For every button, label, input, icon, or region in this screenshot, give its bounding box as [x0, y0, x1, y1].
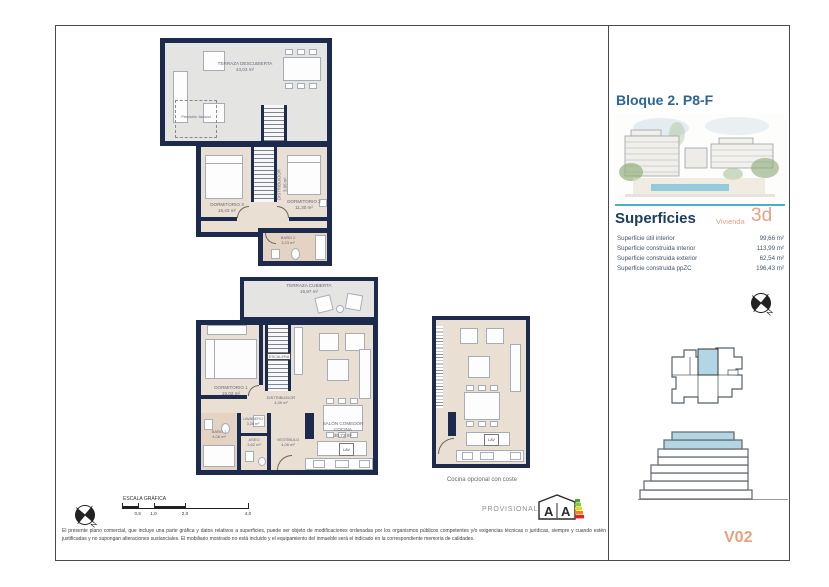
room-area: 3,28 m² — [240, 422, 266, 427]
highlighted-floor — [664, 440, 742, 449]
chair — [285, 83, 293, 89]
scale-tick — [138, 503, 139, 509]
scale-segment — [122, 506, 138, 508]
room-label-dormitorio1: DORMITORIO 1 15,02 m² — [205, 385, 257, 397]
room-label-vestibulo: VESTÍBULO 4,06 m² — [273, 437, 303, 447]
bed-pillows — [287, 155, 321, 163]
room-label-distribuidor-main: DISTRIBUIDOR 4,39 m² — [263, 395, 299, 405]
chair — [297, 83, 305, 89]
jacuzzi-provision-box: Previsión Jacuzzi — [175, 100, 217, 138]
lav-text: LAV — [488, 438, 495, 442]
room-area: 11,30 m² — [283, 205, 325, 211]
chair — [338, 398, 346, 404]
scale-segment — [154, 506, 186, 508]
chair — [350, 398, 358, 404]
side-table — [336, 305, 344, 313]
room-name: ESCALERA — [269, 355, 289, 359]
room-label-dormitorio3: DORMITORIO 3 15,43 m² — [203, 202, 251, 214]
energy-bar-green — [575, 499, 580, 502]
scale-tick-label: 1,0 — [150, 511, 156, 516]
superficie-value: 62,54 m² — [760, 255, 784, 262]
scale-title: ESCALA GRÁFICA — [123, 496, 166, 502]
energy-letter: A — [544, 504, 554, 519]
upper-floor-bath-annex: BAÑO 2 3,23 m² — [258, 228, 332, 266]
scale-tick — [122, 503, 123, 509]
chair — [490, 421, 498, 427]
washer-label: LAV — [339, 443, 354, 456]
interior-wall — [267, 413, 271, 470]
room-area: 4,08 m² — [202, 434, 236, 439]
room-name: Previsión Jacuzzi — [177, 115, 215, 120]
bed-pillows — [205, 339, 215, 379]
room-label-salon: SALÓN COMEDOR COCINA 30,73 m² — [317, 421, 369, 439]
building-elevation-diagram — [638, 428, 788, 521]
chair — [326, 398, 334, 404]
energy-letter: A — [561, 504, 571, 519]
superficie-row: Superficie construida ppZC 196,43 m² — [617, 265, 784, 272]
room-label-lavadero: LAVADERO 3,28 m² — [240, 417, 266, 427]
room-area: 3,62 m² — [241, 442, 267, 447]
disclaimer-body: El presente plano comercial, que incluye… — [62, 528, 606, 542]
coffee-table — [468, 356, 490, 378]
dining-table — [464, 392, 500, 420]
chair — [466, 385, 474, 391]
interior-wall — [201, 217, 237, 221]
pillar — [305, 413, 314, 439]
room-area: 4,39 m² — [263, 400, 299, 405]
shelving — [294, 327, 303, 375]
toilet — [271, 249, 280, 259]
chair — [285, 49, 293, 55]
chair — [478, 421, 486, 427]
armchair — [486, 328, 504, 344]
highlighted-floor — [672, 432, 734, 440]
optional-kitchen-plan: LAV — [432, 316, 530, 468]
washer-label: LAV — [484, 434, 499, 446]
version-label: V02 — [724, 529, 752, 547]
vivienda-text: Vivienda — [716, 217, 745, 226]
cooktop — [480, 452, 494, 460]
kitchen-sink — [462, 452, 473, 460]
block-title-text: Bloque 2. P8-F — [616, 92, 713, 108]
room-area: 15,02 m² — [205, 391, 257, 397]
room-label-terraza-cubierta: TERRAZA CUBIERTA 16,97 m² — [274, 283, 344, 295]
bed-pillows — [205, 155, 243, 164]
scale-tick — [248, 503, 249, 509]
building-rendering — [615, 114, 787, 207]
stairs-label: ESCALERA — [267, 353, 291, 360]
superficie-value: 113,99 m² — [757, 245, 784, 252]
covered-terrace-plan: TERRAZA CUBIERTA 16,97 m² — [240, 277, 378, 321]
interior-wall — [240, 433, 267, 436]
lounge-chair — [314, 294, 333, 313]
jacuzzi-label: Previsión Jacuzzi — [177, 115, 215, 120]
superficie-label: Superficie construida exterior — [617, 255, 697, 262]
energy-bar-orange — [575, 511, 583, 514]
room-area: 43,03 m² — [200, 67, 290, 73]
superficie-label: Superficie útil interior — [617, 235, 675, 242]
scale-tick-label: 4,0 — [245, 511, 251, 516]
toilet — [245, 451, 254, 462]
door-arc — [438, 438, 454, 454]
stairs — [251, 147, 277, 202]
interior-wall — [259, 325, 263, 385]
room-label-dormitorio2: DORMITORIO 2 11,30 m² — [283, 199, 325, 211]
superficie-value: 196,43 m² — [756, 265, 784, 272]
interior-wall — [289, 217, 327, 221]
room-area: 30,73 m² — [317, 433, 369, 439]
unit-type-text: 3d — [751, 205, 772, 226]
sofa — [510, 344, 521, 392]
room-area: 4,06 m² — [273, 442, 303, 447]
pillar — [448, 412, 456, 436]
unit-type-label: 3d — [751, 205, 772, 227]
scale-tick-label: 2,0 — [182, 511, 188, 516]
roof-terrace-plan: TERRAZA DESCUBIERTA 43,03 m² Previsión J… — [160, 38, 332, 146]
bathtub — [203, 445, 235, 467]
superficie-row: Superficie construida exterior 62,54 m² — [617, 255, 784, 262]
superficie-value: 99,66 m² — [760, 235, 784, 242]
main-floor-plan: ESCALERA DISTRIBUIDOR 4,39 m² DORMITORIO… — [196, 320, 378, 475]
room-name: SALÓN COMEDOR COCINA — [317, 421, 369, 433]
caption-text: Cocina opcional con coste — [447, 477, 517, 483]
lounge-chair — [345, 293, 364, 312]
louver-strip — [436, 326, 443, 408]
provisional-label: PROVISIONAL — [482, 506, 538, 513]
provisional-text: PROVISIONAL — [482, 506, 538, 513]
plan-sheet: TERRAZA DESCUBIERTA 43,03 m² Previsión J… — [0, 0, 829, 587]
wardrobe — [207, 325, 247, 335]
energy-bar-lightgreen — [575, 503, 581, 506]
armchair — [319, 333, 339, 351]
energy-bar-red — [575, 515, 584, 518]
sink — [291, 248, 300, 260]
room-label-aseo: ASEO 3,62 m² — [241, 437, 267, 447]
cooktop — [335, 460, 349, 468]
upper-floor-plan: DISTRIBUIDOR 3,96 m² DORMITORIO 3 15,43 … — [196, 142, 332, 237]
room-label-roof-terrace: TERRAZA DESCUBIERTA 43,03 m² — [200, 61, 290, 73]
sidebar-compass-icon: N — [746, 288, 778, 325]
superficies-title-text: Superficies — [615, 210, 696, 227]
energy-bar-yellow — [575, 507, 582, 510]
floor-key-diagram — [662, 343, 750, 418]
chair — [297, 49, 305, 55]
highlighted-unit — [698, 349, 718, 375]
superficie-row: Superficie construida interior 113,99 m² — [617, 245, 784, 252]
superficies-title: Superficies — [615, 210, 696, 227]
superficie-label: Superficie construida ppZC — [617, 265, 692, 272]
armchair — [460, 328, 478, 344]
chair — [309, 83, 317, 89]
room-label-bano2: BAÑO 2 3,23 m² — [271, 235, 305, 245]
room-label-bano1: BAÑO 1 4,08 m² — [202, 429, 236, 439]
scale-title-text: ESCALA GRÁFICA — [123, 496, 166, 502]
north-letter: N — [766, 309, 775, 317]
scale-bar: 0,5 1,0 2,0 4,0 — [122, 504, 248, 509]
scale-tick — [185, 503, 186, 509]
disclaimer-text: El presente plano comercial, que incluye… — [62, 528, 606, 544]
chair — [478, 385, 486, 391]
chair — [490, 385, 498, 391]
sink — [258, 457, 266, 466]
scale-tick-label: 0,5 — [135, 511, 141, 516]
chair — [466, 421, 474, 427]
optional-kitchen-caption: Cocina opcional con coste — [420, 477, 544, 483]
chair — [309, 49, 317, 55]
sofa — [359, 349, 371, 399]
fridge — [359, 460, 370, 468]
superficie-row: Superficie útil interior 99,66 m² — [617, 235, 784, 242]
energy-certificate-icon: A A — [534, 492, 584, 529]
block-title: Bloque 2. P8-F — [616, 92, 713, 108]
room-area: 3,23 m² — [271, 240, 305, 245]
vivienda-label: Vivienda — [716, 217, 745, 226]
superficie-label: Superficie construida interior — [617, 245, 695, 252]
coffee-table — [327, 359, 349, 381]
lav-text: LAV — [343, 448, 350, 452]
entry-door-arc — [277, 455, 292, 470]
bathtub — [315, 235, 326, 260]
room-area: 16,97 m² — [274, 289, 344, 295]
version-text: V02 — [724, 529, 752, 546]
fridge — [510, 452, 521, 460]
scale-tick — [154, 503, 155, 509]
kitchen-sink — [313, 460, 325, 468]
sidebar-divider — [608, 25, 609, 560]
stairs — [261, 105, 287, 141]
room-area: 15,43 m² — [203, 208, 251, 214]
